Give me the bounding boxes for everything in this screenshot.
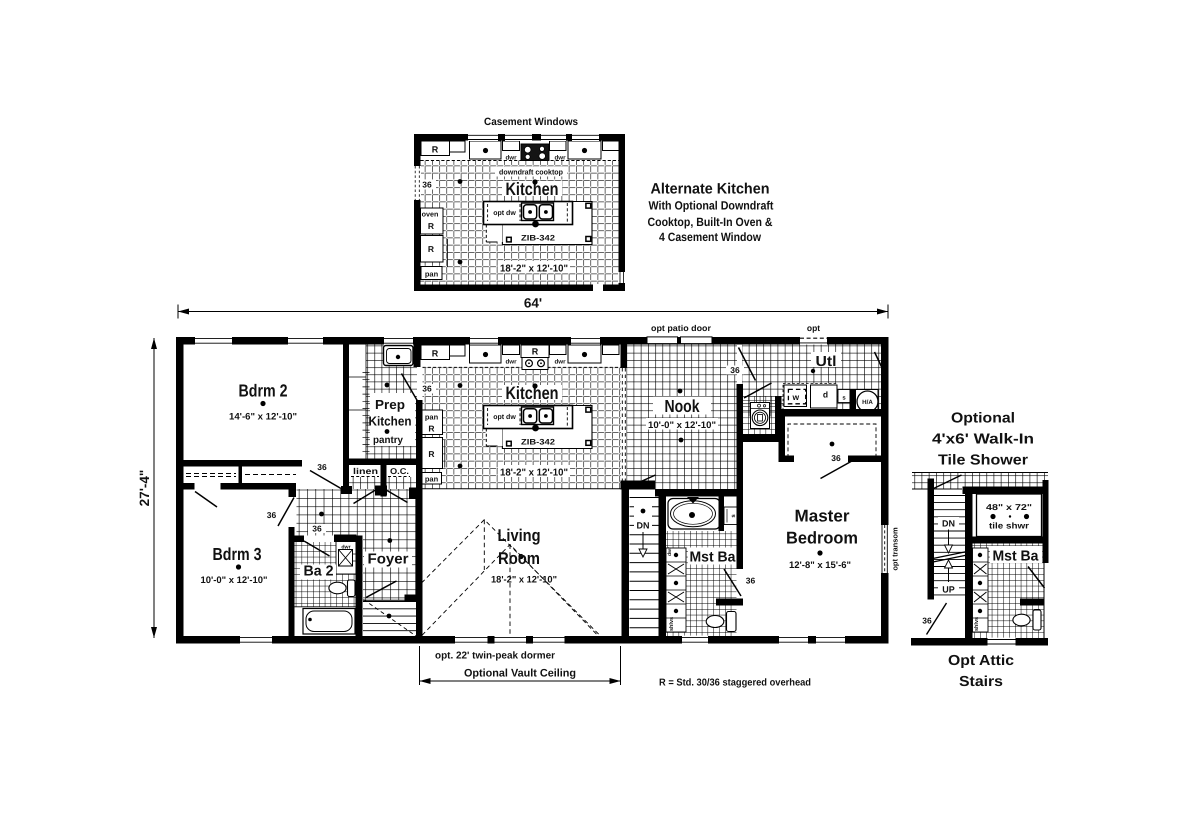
svg-text:36: 36 [746, 576, 756, 586]
svg-text:Ba 2: Ba 2 [304, 564, 334, 580]
svg-text:Master: Master [795, 507, 850, 526]
svg-text:shlvs: shlvs [669, 617, 675, 631]
svg-text:Utl: Utl [816, 354, 837, 370]
svg-text:Casement Windows: Casement Windows [484, 116, 578, 128]
svg-text:opt transom: opt transom [891, 527, 900, 571]
svg-text:10'-0" x 12'-10": 10'-0" x 12'-10" [648, 420, 716, 431]
svg-text:shlvs: shlvs [974, 617, 980, 631]
svg-text:Bdrm 2: Bdrm 2 [239, 381, 288, 401]
svg-text:14'-6" x 12'-10": 14'-6" x 12'-10" [229, 412, 297, 423]
svg-text:36: 36 [922, 616, 932, 626]
svg-text:DN: DN [637, 521, 650, 531]
svg-text:R: R [428, 424, 434, 434]
svg-text:downdraft cooktop: downdraft cooktop [499, 168, 563, 177]
svg-text:opt patio door: opt patio door [651, 323, 712, 333]
svg-text:opt: opt [807, 323, 820, 333]
svg-text:4 Casement Window: 4 Casement Window [659, 230, 762, 244]
svg-text:oven: oven [422, 210, 439, 219]
svg-text:10'-0" x 12'-10": 10'-0" x 12'-10" [201, 575, 268, 586]
svg-text:36: 36 [730, 365, 740, 375]
svg-text:64': 64' [524, 296, 542, 311]
svg-text:dwr: dwr [667, 547, 673, 556]
svg-text:Foyer: Foyer [368, 552, 409, 568]
svg-text:tile shwr: tile shwr [989, 521, 1030, 531]
svg-text:36: 36 [317, 462, 327, 472]
svg-text:O.C.: O.C. [390, 466, 409, 476]
svg-text:UP: UP [942, 585, 955, 595]
svg-text:Nook: Nook [665, 396, 700, 416]
svg-text:18'-2" x 12'-10": 18'-2" x 12'-10" [491, 575, 557, 586]
svg-text:d: d [823, 390, 828, 400]
svg-text:R: R [428, 221, 434, 231]
svg-text:pan: pan [425, 413, 439, 422]
svg-text:R: R [428, 244, 434, 254]
svg-text:pantry: pantry [373, 435, 403, 446]
svg-text:48" x 72": 48" x 72" [986, 502, 1032, 512]
svg-text:Tile Shower: Tile Shower [938, 453, 1028, 469]
svg-text:12'-8" x 15'-6": 12'-8" x 15'-6" [789, 560, 851, 571]
svg-text:R: R [428, 449, 434, 459]
svg-text:36: 36 [312, 524, 322, 534]
svg-text:36: 36 [267, 510, 277, 520]
svg-text:H/A: H/A [862, 399, 873, 406]
svg-text:4'x6' Walk-In: 4'x6' Walk-In [932, 432, 1034, 448]
svg-text:Optional Vault Ceiling: Optional Vault Ceiling [464, 668, 576, 680]
svg-text:Optional: Optional [951, 411, 1015, 427]
svg-text:Cooktop, Built-In Oven &: Cooktop, Built-In Oven & [648, 215, 773, 229]
svg-text:Mst Ba: Mst Ba [993, 549, 1040, 565]
svg-text:Kitchen: Kitchen [369, 414, 412, 429]
svg-text:Stairs: Stairs [959, 674, 1003, 690]
svg-text:R = Std. 30/36 staggered overh: R = Std. 30/36 staggered overhead [659, 678, 811, 689]
svg-text:Living: Living [498, 526, 541, 545]
svg-text:Bdrm 3: Bdrm 3 [213, 544, 262, 564]
svg-text:R: R [532, 347, 539, 357]
svg-text:36: 36 [831, 453, 841, 463]
svg-text:Bedroom: Bedroom [786, 529, 858, 548]
svg-text:With Optional Downdraft: With Optional Downdraft [649, 199, 774, 213]
svg-text:27'-4": 27'-4" [137, 470, 152, 507]
svg-text:opt. 22' twin-peak dormer: opt. 22' twin-peak dormer [435, 651, 555, 662]
svg-text:Room: Room [498, 549, 540, 568]
svg-text:DN: DN [942, 519, 955, 529]
svg-text:Prep: Prep [375, 397, 405, 412]
svg-text:linen: linen [353, 466, 378, 476]
svg-text:Opt Attic: Opt Attic [948, 653, 1014, 669]
svg-text:pan: pan [425, 475, 439, 484]
svg-text:pan: pan [425, 270, 439, 279]
svg-text:Alternate Kitchen: Alternate Kitchen [651, 181, 770, 198]
svg-text:w: w [791, 392, 799, 402]
svg-text:Mst Ba: Mst Ba [690, 550, 737, 566]
